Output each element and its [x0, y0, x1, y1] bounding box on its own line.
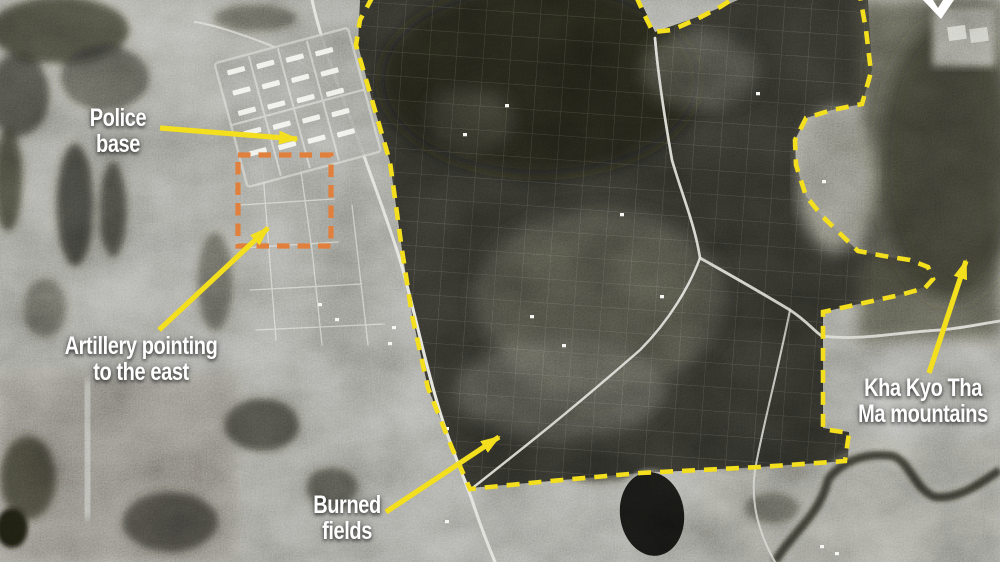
artillery-highlight-box	[238, 155, 331, 246]
burned-area-outline-secondary	[636, 0, 734, 32]
annotated-satellite-image: Police base Artillery pointing to the ea…	[0, 0, 1000, 562]
artillery-arrow	[159, 228, 268, 330]
annotation-overlay	[0, 0, 1000, 562]
burned-area-outline	[356, 0, 933, 489]
burned-fields-arrow	[386, 437, 499, 512]
police-base-arrow	[160, 128, 297, 139]
north-star-icon	[923, 0, 954, 19]
